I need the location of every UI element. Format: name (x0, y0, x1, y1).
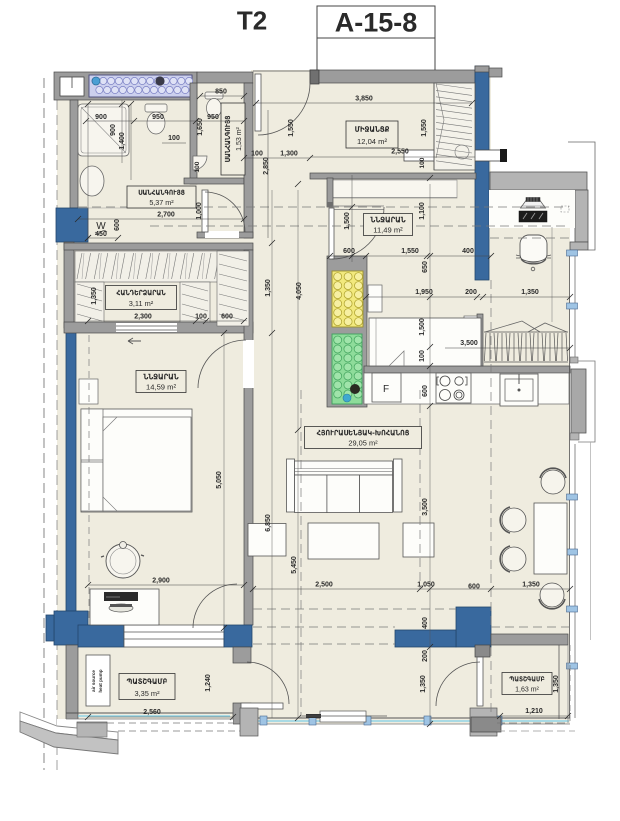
svg-text:1,000: 1,000 (196, 202, 203, 220)
svg-text:air source: air source (91, 670, 96, 692)
svg-text:600: 600 (343, 248, 355, 255)
svg-text:1,300: 1,300 (280, 151, 298, 158)
svg-text:950: 950 (152, 114, 164, 121)
svg-text:600: 600 (221, 314, 233, 321)
svg-text:850: 850 (215, 89, 227, 96)
svg-text:100: 100 (168, 135, 180, 142)
svg-text:2,500: 2,500 (315, 582, 333, 589)
svg-text:450: 450 (95, 231, 107, 238)
svg-text:1,350: 1,350 (553, 675, 560, 693)
svg-text:1,240: 1,240 (205, 674, 212, 692)
svg-text:5,450: 5,450 (291, 556, 298, 574)
svg-text:100: 100 (419, 157, 426, 168)
svg-text:2,900: 2,900 (152, 578, 170, 585)
svg-text:100: 100 (419, 350, 426, 362)
svg-text:3,500: 3,500 (422, 498, 429, 516)
svg-text:600: 600 (468, 584, 480, 591)
svg-text:400: 400 (422, 617, 429, 629)
svg-text:1,500: 1,500 (344, 212, 351, 230)
svg-text:100: 100 (195, 314, 207, 321)
svg-text:5,37 m²: 5,37 m² (149, 198, 174, 207)
svg-text:650: 650 (422, 261, 429, 273)
svg-text:heat pump: heat pump (98, 669, 103, 692)
svg-text:14,59 m²: 14,59 m² (146, 382, 176, 391)
svg-text:1,210: 1,210 (525, 708, 543, 715)
svg-text:3,11 m²: 3,11 m² (129, 299, 154, 308)
svg-text:F: F (383, 384, 389, 395)
svg-text:100: 100 (194, 161, 201, 172)
svg-text:1,650: 1,650 (197, 118, 204, 136)
svg-text:29,05 m²: 29,05 m² (348, 438, 378, 447)
svg-text:1,350: 1,350 (420, 675, 427, 693)
svg-text:4,050: 4,050 (296, 282, 303, 300)
svg-text:2,300: 2,300 (134, 314, 152, 321)
svg-text:400: 400 (462, 248, 474, 255)
svg-text:1,500: 1,500 (419, 318, 426, 336)
svg-text:1,350: 1,350 (522, 582, 540, 589)
svg-text:2,560: 2,560 (143, 709, 161, 716)
svg-text:2,550: 2,550 (391, 149, 409, 156)
svg-text:T2: T2 (237, 6, 267, 36)
svg-text:900: 900 (95, 114, 107, 121)
svg-text:1,350: 1,350 (521, 289, 539, 296)
svg-text:11,49 m²: 11,49 m² (373, 225, 403, 234)
svg-text:900: 900 (110, 124, 117, 136)
svg-text:600: 600 (114, 219, 121, 231)
svg-text:3,500: 3,500 (460, 340, 478, 347)
svg-text:3,850: 3,850 (355, 96, 373, 103)
svg-text:5,050: 5,050 (216, 471, 223, 489)
svg-text:1,550: 1,550 (401, 248, 419, 255)
svg-text:1,63 m²: 1,63 m² (515, 686, 539, 693)
svg-text:3,35 m²: 3,35 m² (134, 689, 160, 698)
svg-text:200: 200 (465, 289, 477, 296)
svg-text:1,050: 1,050 (417, 582, 435, 589)
svg-text:1,53 m²: 1,53 m² (236, 126, 243, 150)
svg-text:1,550: 1,550 (288, 119, 295, 137)
svg-text:1,550: 1,550 (421, 119, 428, 137)
svg-text:600: 600 (422, 385, 429, 397)
svg-text:A-15-8: A-15-8 (335, 8, 418, 38)
svg-text:950: 950 (207, 114, 219, 121)
svg-text:12,04 m²: 12,04 m² (357, 137, 387, 146)
svg-text:200: 200 (422, 650, 429, 662)
svg-text:1,350: 1,350 (91, 287, 98, 305)
svg-text:100: 100 (251, 151, 263, 158)
svg-text:6,850: 6,850 (265, 514, 272, 532)
svg-text:2,700: 2,700 (157, 212, 175, 219)
svg-text:1,400: 1,400 (119, 132, 126, 150)
svg-text:2,850: 2,850 (263, 157, 270, 175)
svg-text:1,100: 1,100 (419, 202, 426, 220)
svg-text:1,350: 1,350 (265, 279, 272, 297)
